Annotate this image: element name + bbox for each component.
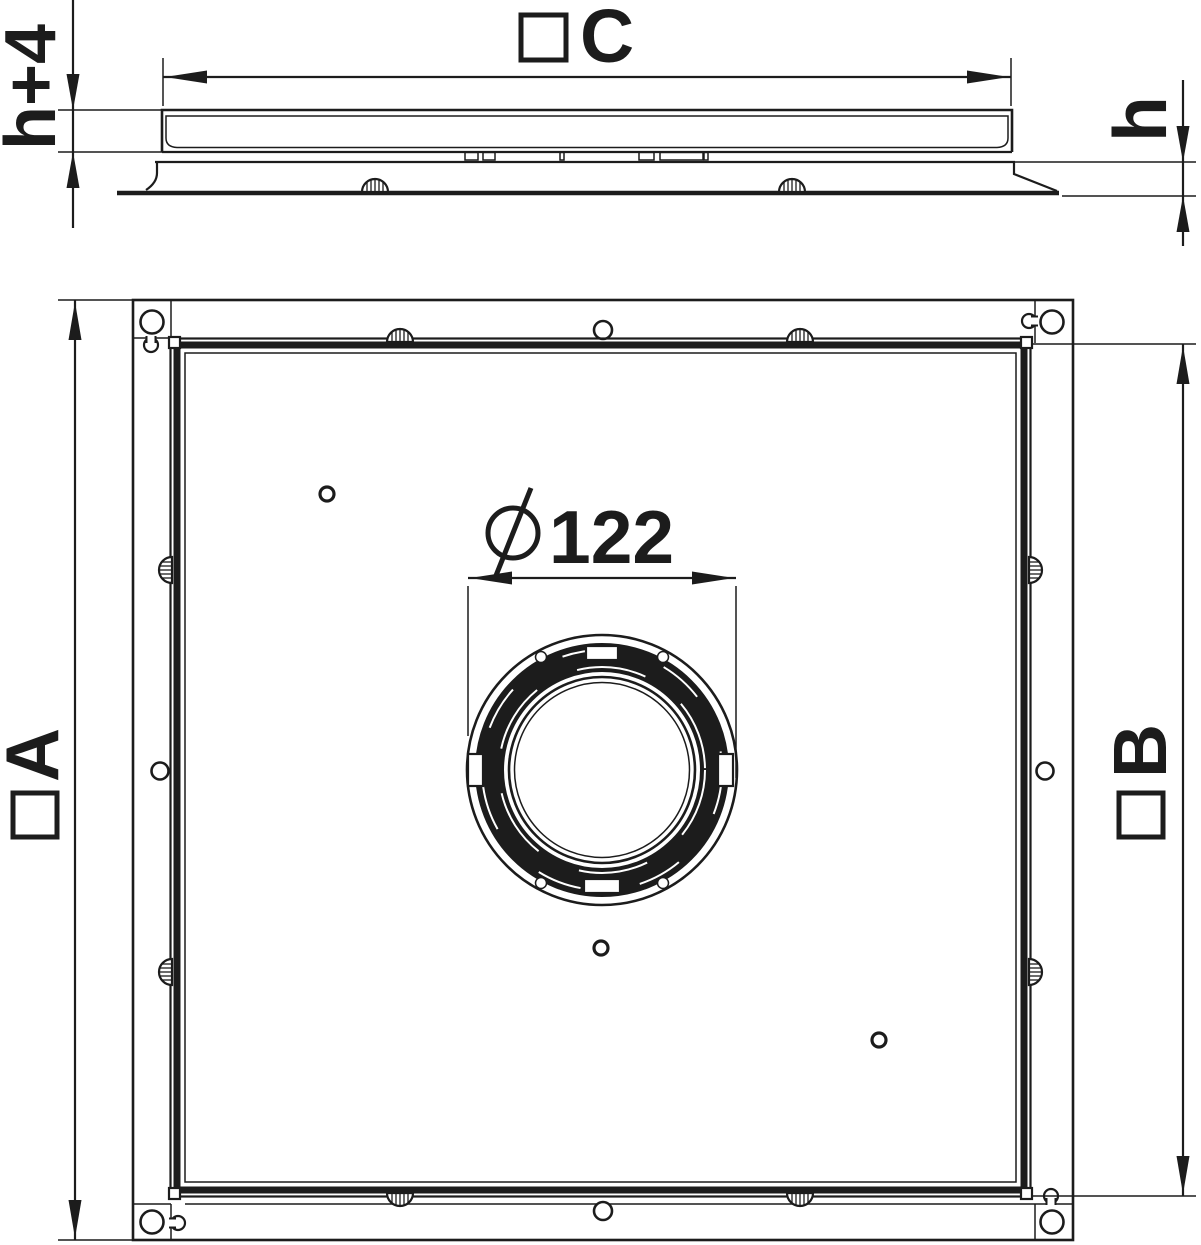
keyhole-cutout-icon	[1022, 314, 1039, 328]
fixing-hole	[152, 763, 169, 780]
plan-view: 122 A B	[0, 300, 1196, 1240]
screw-icon	[779, 179, 805, 192]
square-symbol-icon	[521, 15, 566, 60]
screw-icon	[159, 557, 172, 583]
cover-hole	[594, 941, 608, 955]
screw-icon	[362, 179, 388, 192]
side-view: h+4 C h	[0, 0, 1196, 246]
keyhole-cutout-icon	[1044, 1189, 1058, 1206]
dimension-label: B	[1098, 724, 1182, 778]
screw-icon	[159, 959, 172, 985]
cover-plate-section	[162, 110, 1012, 160]
screw-icon	[1029, 959, 1042, 985]
fixing-hole	[141, 1211, 164, 1234]
screw-icon	[1029, 557, 1042, 583]
tube-clip	[658, 878, 669, 889]
tube-clip	[468, 754, 483, 786]
tube-clip	[658, 652, 669, 663]
square-symbol-icon	[1119, 793, 1163, 837]
fixing-hole	[594, 1202, 612, 1220]
dimension-label: h+4	[0, 24, 71, 150]
screw-icon	[387, 329, 413, 342]
cover-hole	[872, 1033, 886, 1047]
corner-plate-bottom-left	[133, 1204, 185, 1240]
cover-hole	[320, 487, 334, 501]
corner-plate-top-left	[133, 300, 171, 352]
fixing-hole	[594, 321, 612, 339]
dimension-frame-height: h	[1098, 80, 1190, 246]
square-symbol-icon	[13, 793, 57, 837]
fixing-hole	[1041, 1211, 1064, 1234]
diameter-symbol-icon	[488, 488, 538, 578]
fixing-hole	[1041, 311, 1064, 334]
center-tube-ring	[467, 635, 737, 905]
outer-frame	[133, 300, 1073, 1240]
tube-clip	[586, 646, 618, 660]
keyhole-cutout-icon	[144, 335, 158, 352]
technical-drawing-page: h+4 C h	[0, 0, 1201, 1245]
tube-clip	[536, 878, 547, 889]
tube-clips-section	[465, 153, 708, 161]
keyhole-cutout-icon	[168, 1216, 185, 1230]
dimension-label: A	[0, 728, 74, 782]
tube-clip	[718, 754, 733, 786]
dimension-label: h	[1098, 96, 1182, 142]
cassette-technical-drawing: h+4 C h	[0, 0, 1201, 1245]
tube-clip	[584, 879, 620, 893]
screw-icon	[787, 329, 813, 342]
fixing-hole	[1037, 763, 1054, 780]
cassette-cover	[159, 329, 1042, 1206]
dimension-outer-width: A	[0, 300, 133, 1240]
dimension-inner-width: B	[1032, 344, 1196, 1196]
tube-clip	[536, 652, 547, 663]
dimension-label: C	[580, 0, 634, 78]
dimension-label: 122	[549, 495, 674, 579]
fixing-hole	[141, 311, 164, 334]
frame-section	[117, 162, 1196, 196]
dimension-cover-width: C	[163, 0, 1011, 106]
